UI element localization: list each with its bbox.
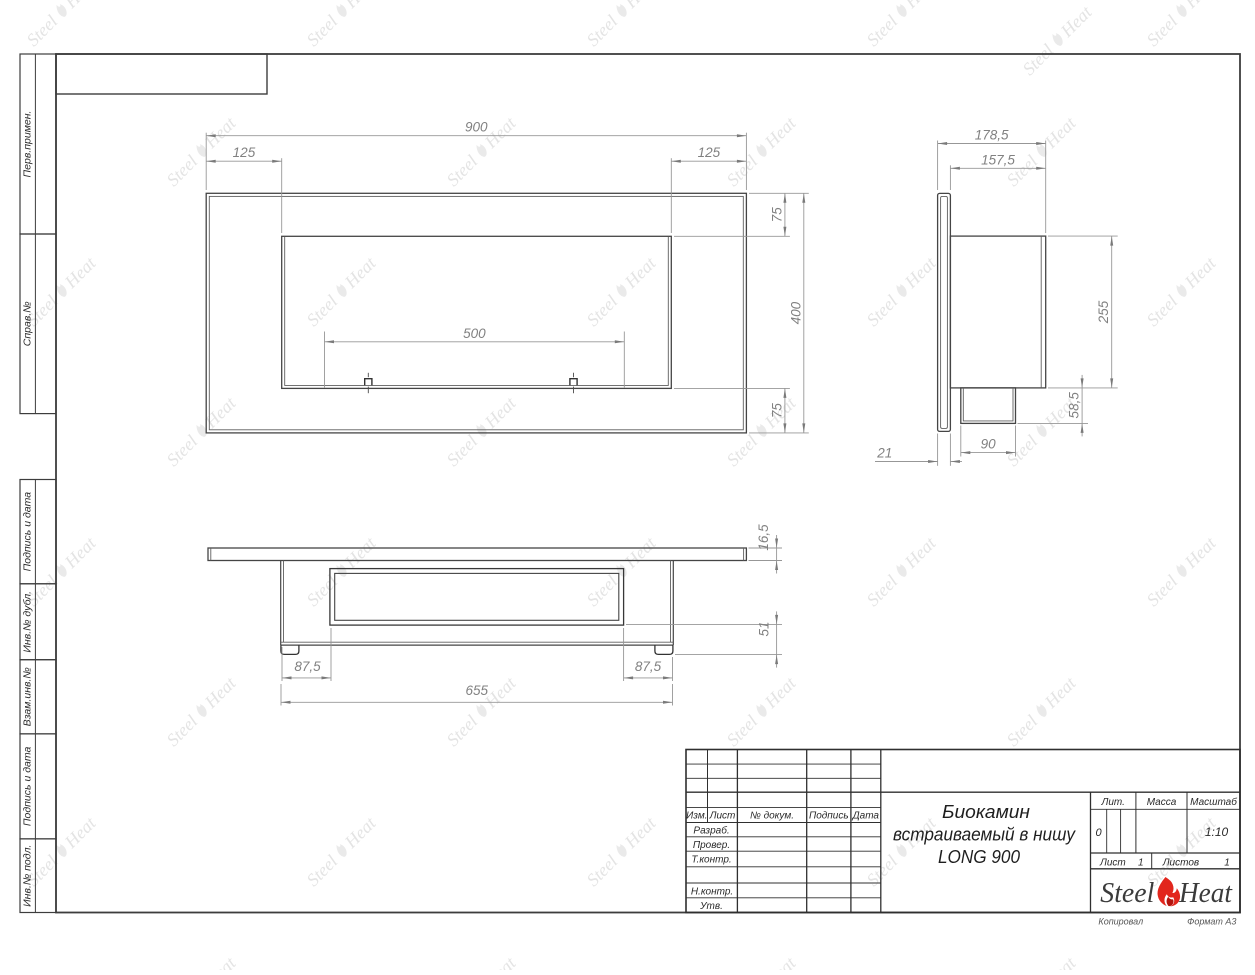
svg-text:Подпись: Подпись: [809, 811, 849, 822]
svg-text:500: 500: [463, 326, 486, 341]
svg-text:900: 900: [465, 120, 488, 135]
svg-text:1:10: 1:10: [1205, 825, 1229, 839]
svg-text:Провер.: Провер.: [693, 840, 730, 851]
svg-text:255: 255: [1096, 300, 1111, 324]
svg-text:Лист: Лист: [709, 811, 736, 822]
svg-text:Масса: Масса: [1147, 797, 1177, 808]
svg-text:Листов: Листов: [1162, 858, 1199, 869]
svg-text:Лист: Лист: [1099, 858, 1126, 869]
svg-text:87,5: 87,5: [635, 659, 662, 674]
svg-text:157,5: 157,5: [981, 152, 1015, 167]
svg-text:16,5: 16,5: [756, 524, 771, 551]
svg-text:58,5: 58,5: [1067, 392, 1082, 419]
svg-text:0: 0: [1096, 827, 1103, 839]
svg-text:Т.контр.: Т.контр.: [691, 855, 731, 866]
svg-text:125: 125: [233, 145, 256, 160]
svg-text:LONG 900: LONG 900: [938, 846, 1021, 867]
svg-text:75: 75: [769, 207, 784, 223]
svg-text:21: 21: [876, 446, 892, 461]
svg-text:Н.контр.: Н.контр.: [691, 887, 733, 898]
svg-text:Изм.: Изм.: [686, 811, 707, 822]
svg-text:Подпись и дата: Подпись и дата: [22, 747, 34, 827]
svg-text:Масштаб: Масштаб: [1190, 796, 1237, 808]
svg-text:178,5: 178,5: [975, 128, 1009, 143]
svg-text:Формат А3: Формат А3: [1187, 917, 1236, 927]
svg-text:Копировал: Копировал: [1098, 917, 1143, 927]
svg-text:№ докум.: № докум.: [750, 811, 794, 822]
svg-text:Справ.№: Справ.№: [22, 301, 34, 346]
svg-text:400: 400: [788, 301, 803, 324]
svg-text:90: 90: [981, 437, 997, 452]
svg-text:1: 1: [1138, 858, 1144, 869]
svg-text:Перв.примен.: Перв.примен.: [22, 111, 34, 178]
svg-text:Инв.№ подл.: Инв.№ подл.: [22, 845, 34, 907]
svg-text:Лит.: Лит.: [1100, 797, 1124, 808]
svg-text:87,5: 87,5: [294, 659, 321, 674]
svg-text:125: 125: [698, 145, 721, 160]
svg-text:75: 75: [769, 403, 784, 419]
svg-text:встраиваемый в нишу: встраиваемый в нишу: [893, 824, 1077, 845]
svg-text:Подпись и дата: Подпись и дата: [22, 492, 34, 572]
svg-text:51: 51: [757, 621, 772, 636]
svg-text:Heat: Heat: [1178, 878, 1233, 909]
svg-text:655: 655: [465, 683, 488, 698]
svg-text:Инв.№ дубл.: Инв.№ дубл.: [22, 591, 34, 653]
svg-text:Разраб.: Разраб.: [693, 825, 729, 837]
svg-text:1: 1: [1224, 858, 1230, 869]
svg-text:Взам.инв.№: Взам.инв.№: [22, 667, 34, 726]
svg-text:Steel: Steel: [1100, 878, 1154, 909]
svg-text:Биокамин: Биокамин: [942, 801, 1030, 822]
svg-text:Дата: Дата: [852, 811, 880, 822]
svg-text:Утв.: Утв.: [699, 901, 723, 912]
